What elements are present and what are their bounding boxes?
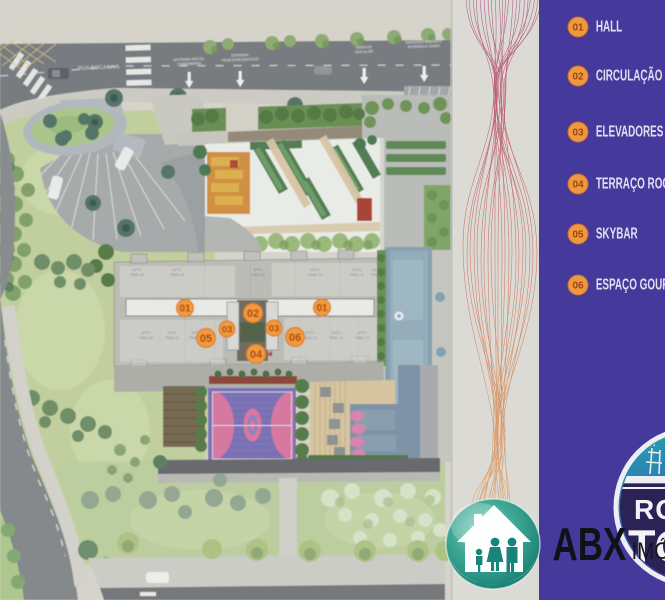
svg-text:03: 03 xyxy=(222,324,233,335)
svg-text:FINAL 11: FINAL 11 xyxy=(350,273,364,277)
svg-text:01: 01 xyxy=(572,23,584,34)
svg-text:FINAL 10: FINAL 10 xyxy=(165,336,179,340)
svg-text:FINAL 06: FINAL 06 xyxy=(130,273,144,277)
svg-text:03: 03 xyxy=(269,323,280,334)
svg-text:02: 02 xyxy=(247,308,259,320)
svg-text:IMÓV: IMÓV xyxy=(632,537,665,564)
svg-text:03: 03 xyxy=(572,128,584,139)
svg-text:04: 04 xyxy=(250,349,263,361)
svg-text:APTO: APTO xyxy=(168,331,177,335)
svg-text:FINAL 71: FINAL 71 xyxy=(329,336,343,340)
svg-text:FINAL 05: FINAL 05 xyxy=(170,273,184,277)
svg-text:ELEVADORES: ELEVADORES xyxy=(596,122,664,140)
svg-text:HALL: HALL xyxy=(596,17,622,35)
svg-text:FINAL 09: FINAL 09 xyxy=(139,336,153,340)
svg-text:APTO: APTO xyxy=(254,268,263,272)
svg-text:FINAL 12: FINAL 12 xyxy=(303,336,317,340)
svg-text:02: 02 xyxy=(572,72,584,83)
svg-text:VEICULOS: VEICULOS xyxy=(355,50,374,55)
svg-text:APTO: APTO xyxy=(173,268,182,272)
svg-text:SKYBAR: SKYBAR xyxy=(596,224,638,242)
svg-text:FINAL 03: FINAL 03 xyxy=(308,273,322,277)
svg-text:01: 01 xyxy=(316,303,328,314)
svg-text:APTO: APTO xyxy=(358,331,367,335)
svg-text:ESPAÇO GOURMET: ESPAÇO GOURMET xyxy=(596,275,665,293)
svg-text:04: 04 xyxy=(572,180,584,191)
svg-text:APTO: APTO xyxy=(142,331,151,335)
svg-text:APTO: APTO xyxy=(353,268,362,272)
svg-text:APTO: APTO xyxy=(306,331,315,335)
svg-text:05: 05 xyxy=(200,333,212,345)
svg-text:FINAL 04: FINAL 04 xyxy=(251,273,265,277)
svg-text:FINAL 73: FINAL 73 xyxy=(355,336,369,340)
svg-text:APTO: APTO xyxy=(133,268,142,272)
svg-text:06: 06 xyxy=(289,332,301,344)
svg-text:01: 01 xyxy=(179,304,191,315)
svg-text:05: 05 xyxy=(572,230,584,241)
svg-text:ABX: ABX xyxy=(553,518,627,570)
svg-text:06: 06 xyxy=(572,281,584,292)
svg-text:TERRAÇO ROOFTOP: TERRAÇO ROOFTOP xyxy=(596,174,665,192)
svg-text:APTO: APTO xyxy=(332,331,341,335)
svg-text:APTO: APTO xyxy=(311,268,320,272)
svg-text:CIRCULAÇÃO VERTICAL: CIRCULAÇÃO VERTICAL xyxy=(596,66,665,84)
